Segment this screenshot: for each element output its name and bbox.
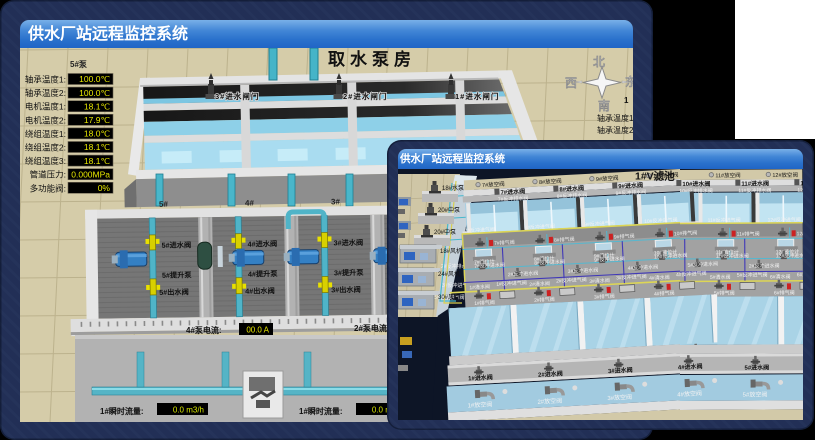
svg-text:24#风机: 24#风机 — [438, 270, 460, 278]
svg-text:10#进水阀: 10#进水阀 — [682, 180, 710, 188]
svg-text:3#进水闸门: 3#进水闸门 — [215, 91, 259, 101]
svg-text:1#瞬时流量:: 1#瞬时流量: — [100, 406, 144, 416]
svg-text:绕组温度3:: 绕组温度3: — [25, 156, 66, 166]
svg-text:20#中泵: 20#中泵 — [434, 228, 456, 236]
svg-text:3#进水阀: 3#进水阀 — [333, 238, 363, 247]
svg-text:00.0 A: 00.0 A — [246, 326, 269, 335]
svg-text:绕组温度2:: 绕组温度2: — [25, 143, 66, 153]
svg-text:12#放空阀: 12#放空阀 — [772, 171, 798, 179]
svg-text:18#风机: 18#风机 — [440, 247, 462, 255]
svg-text:11#放空阀: 11#放空阀 — [715, 171, 740, 179]
svg-text:1#V滤池: 1#V滤池 — [635, 170, 675, 183]
svg-text:3#出水阀: 3#出水阀 — [331, 285, 361, 294]
svg-text:轴承温度1:: 轴承温度1: — [25, 75, 66, 85]
svg-text:绕组温度1:: 绕组温度1: — [25, 129, 66, 139]
svg-text:18.1℃: 18.1℃ — [84, 101, 111, 111]
svg-text:30#风机: 30#风机 — [438, 293, 460, 301]
svg-text:6#清水阀: 6#清水阀 — [770, 273, 791, 280]
svg-text:11#反冲进气阀: 11#反冲进气阀 — [708, 217, 741, 224]
svg-text:2#排气阀: 2#排气阀 — [534, 296, 555, 304]
svg-text:轴承温度1:: 轴承温度1: — [597, 113, 633, 123]
svg-text:11#反冲进水阀: 11#反冲进水阀 — [716, 253, 749, 260]
svg-text:100.0℃: 100.0℃ — [79, 88, 110, 98]
svg-text:1#排气阀: 1#排气阀 — [474, 299, 495, 307]
svg-text:17.9℃: 17.9℃ — [84, 115, 111, 125]
svg-text:多功能阀:: 多功能阀: — [30, 183, 66, 193]
svg-text:11#排气阀: 11#排气阀 — [737, 231, 760, 238]
svg-text:电机温度1:: 电机温度1: — [25, 102, 66, 112]
svg-text:18.1℃: 18.1℃ — [84, 156, 111, 166]
svg-text:4#进水阀: 4#进水阀 — [247, 239, 277, 248]
svg-text:1#进水闸门: 1#进水闸门 — [455, 91, 499, 101]
svg-text:2#进水闸门: 2#进水闸门 — [343, 91, 387, 101]
svg-text:取水泵房: 取水泵房 — [328, 49, 416, 69]
svg-text:18#水泵: 18#水泵 — [442, 184, 464, 192]
svg-text:2#反冲进水阀: 2#反冲进水阀 — [749, 262, 780, 269]
svg-text:5#出水阀: 5#出水阀 — [159, 287, 189, 296]
svg-text:4#: 4# — [245, 198, 255, 207]
svg-text:5#清水阀: 5#清水阀 — [710, 274, 731, 281]
svg-text:电机温度2:: 电机温度2: — [25, 115, 66, 125]
svg-text:2#泵电流:: 2#泵电流: — [354, 323, 390, 333]
svg-text:轴承温度2:: 轴承温度2: — [25, 88, 66, 98]
svg-text:1#瞬时流量:: 1#瞬时流量: — [299, 406, 343, 416]
svg-text:北: 北 — [593, 54, 605, 69]
svg-text:8#排气阀: 8#排气阀 — [554, 236, 575, 244]
svg-text:12#反冲进气阀: 12#反冲进气阀 — [768, 216, 801, 223]
svg-text:18.0℃: 18.0℃ — [84, 129, 111, 139]
svg-text:20#中泵: 20#中泵 — [438, 206, 460, 214]
svg-text:9#排气阀: 9#排气阀 — [614, 233, 635, 241]
svg-text:南: 南 — [598, 98, 610, 113]
svg-text:12#反冲进水阀: 12#反冲进水阀 — [776, 252, 803, 259]
svg-text:5#反冲进气阀: 5#反冲进气阀 — [737, 271, 768, 278]
svg-text:5#提升泵: 5#提升泵 — [162, 270, 192, 279]
svg-text:4#提升泵: 4#提升泵 — [248, 269, 278, 278]
svg-text:0.000MPa: 0.000MPa — [71, 169, 110, 179]
svg-text:0%: 0% — [98, 183, 111, 193]
svg-text:3#排气阀: 3#排气阀 — [594, 293, 615, 301]
svg-text:5#放空阀: 5#放空阀 — [743, 390, 768, 398]
svg-text:5#进水阀: 5#进水阀 — [744, 363, 769, 371]
svg-text:11#进水阀: 11#进水阀 — [741, 179, 769, 187]
svg-text:西: 西 — [565, 76, 577, 90]
svg-text:10#排气阀: 10#排气阀 — [674, 229, 698, 237]
svg-text:4#泵电流:: 4#泵电流: — [186, 325, 222, 335]
svg-text:12#进水阀: 12#进水阀 — [800, 179, 803, 187]
svg-text:0.0 m3/h: 0.0 m3/h — [173, 406, 204, 415]
svg-text:轴承温度2:: 轴承温度2: — [597, 125, 633, 135]
svg-text:4#排气阀: 4#排气阀 — [654, 290, 675, 298]
svg-text:3#提升泵: 3#提升泵 — [334, 268, 364, 277]
svg-text:6#排气阀: 6#排气阀 — [774, 289, 795, 296]
svg-text:5#泵: 5#泵 — [70, 60, 87, 69]
svg-text:100.0℃: 100.0℃ — [79, 74, 110, 84]
svg-text:7#排气阀: 7#排气阀 — [494, 239, 515, 247]
svg-text:1: 1 — [624, 96, 629, 105]
svg-text:5#进水阀: 5#进水阀 — [161, 240, 191, 249]
svg-text:18.1℃: 18.1℃ — [84, 142, 111, 152]
svg-text:5#: 5# — [159, 200, 169, 209]
svg-text:4#出水阀: 4#出水阀 — [245, 286, 275, 295]
svg-text:12#排气阀: 12#排气阀 — [797, 230, 803, 237]
svg-text:3#: 3# — [331, 197, 341, 206]
svg-text:6#反冲进气阀: 6#反冲进气阀 — [797, 271, 803, 278]
svg-text:管道压力:: 管道压力: — [30, 170, 66, 180]
